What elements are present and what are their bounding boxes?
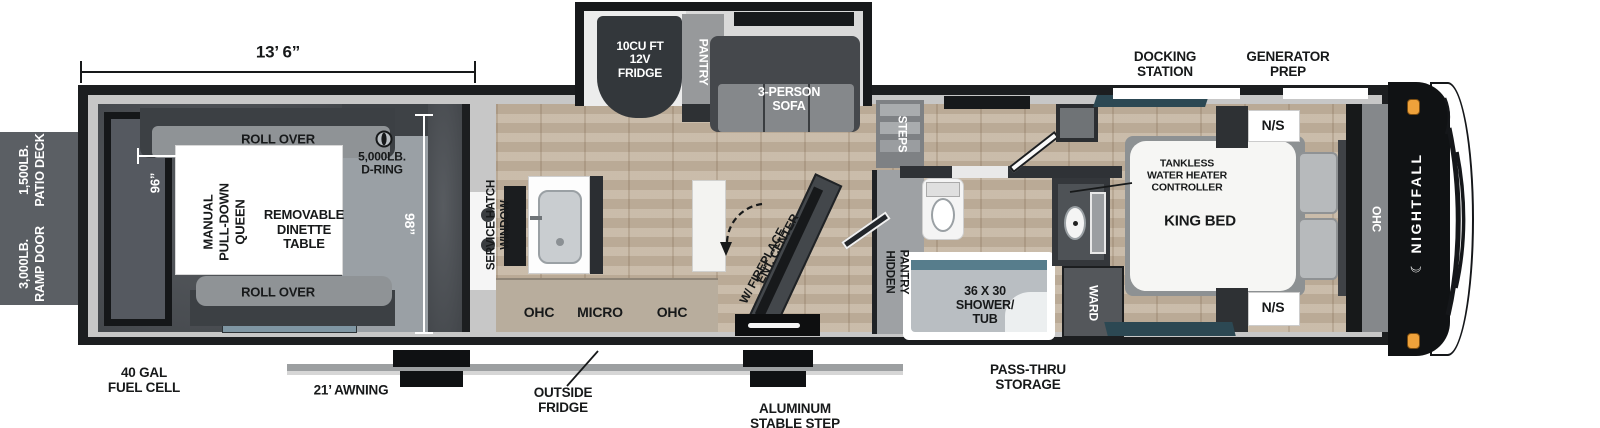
fridge-line: FRIDGE — [616, 67, 663, 80]
queen-bed-label: PULL-DOWN — [218, 183, 233, 261]
sofa-line: SOFA — [758, 99, 820, 113]
slideout-window — [734, 12, 854, 26]
outside-fridge-label: OUTSIDE FRIDGE — [534, 385, 593, 415]
pass-thru-line: PASS-THRU — [990, 362, 1066, 377]
tankless-line: WATER HEATER — [1147, 170, 1227, 182]
hallway-cabinet-mirror — [1060, 108, 1094, 138]
patio-deck-label: PATIO DECK — [33, 133, 47, 206]
hidden-pantry-label: HIDDEN — [883, 251, 896, 294]
king-bed-label: KING BED — [1164, 214, 1236, 231]
generator-line: PREP — [1246, 64, 1329, 79]
hidden-pantry-label: PANTRY — [897, 250, 910, 295]
service-hatch-label: WINDOW — [500, 200, 513, 249]
queen-bed-label: QUEEN — [234, 199, 249, 244]
stable-step-label: ALUMINUM STABLE STEP — [750, 401, 840, 428]
fridge-line: 10CU FT — [616, 40, 663, 53]
generator-prep-label: GENERATOR PREP — [1246, 49, 1329, 79]
nightstand-top-cabinet — [1216, 106, 1248, 148]
queen-width-dimension: 96” — [149, 173, 164, 193]
brand-logo: ☾NIGHTFALL — [1409, 152, 1425, 273]
outside-fridge-line: OUTSIDE — [534, 385, 593, 400]
patio-deck-label: 1,500LB. — [17, 145, 31, 195]
vanity-sink-drain — [1073, 221, 1078, 226]
toilet-tank — [926, 182, 960, 197]
tankless-water-heater-label: TANKLESS WATER HEATER CONTROLLER — [1147, 158, 1227, 193]
docking-station-label: DOCKING STATION — [1134, 49, 1196, 79]
sink-drain — [556, 238, 564, 246]
micro-label: MICRO — [577, 305, 623, 321]
steps-label: STEPS — [895, 116, 908, 153]
roll-over-top-label: ROLL OVER — [241, 133, 315, 148]
hallway-window — [944, 96, 1030, 109]
d-ring-line: D-RING — [358, 164, 406, 177]
toilet-bowl — [931, 198, 955, 232]
pass-thru-storage-label: PASS-THRU STORAGE — [990, 362, 1066, 392]
awning-bar-highlight — [287, 371, 903, 375]
queen-bed-label: MANUAL — [202, 194, 217, 249]
sink-faucet — [530, 216, 542, 220]
headboard — [1338, 140, 1346, 296]
bathroom-door-opening — [952, 166, 1008, 178]
garage-kitchen-wall-line — [462, 104, 470, 332]
fireplace-insert — [748, 323, 800, 328]
shower-line: SHOWER/ — [956, 298, 1014, 312]
dinette-line: REMOVABLE — [264, 208, 344, 223]
outside-fridge-line: FRIDGE — [534, 400, 593, 415]
shower-water-edge — [911, 260, 1047, 270]
fuel-cell-line: 40 GAL — [108, 365, 180, 380]
garage-length-dimension-line — [81, 61, 475, 83]
nightstand-top-label: N/S — [1262, 118, 1285, 134]
ohc-left-label: OHC — [524, 305, 555, 321]
ramp-door-label: 3,000LB. — [17, 239, 31, 289]
brand-name: NIGHTFALL — [1408, 152, 1424, 253]
fuel-cell-line: FUEL CELL — [108, 380, 180, 395]
floorplan-diagram: 13’ 6” 1,500LB. PATIO DECK 3,000LB. RAMP… — [0, 0, 1600, 428]
garage-right-strip — [428, 104, 462, 332]
tankless-line: TANKLESS — [1147, 158, 1227, 170]
crescent-moon-icon: ☾ — [1408, 258, 1424, 273]
sofa-line: 3-PERSON — [758, 85, 820, 99]
bedroom-window-bottom — [1104, 322, 1235, 336]
dinette-table-label: REMOVABLE DINETTE TABLE — [264, 208, 344, 252]
step-tread — [880, 104, 920, 116]
main-entry-step — [743, 350, 813, 367]
shower-tub-label: 36 X 30 SHOWER/ TUB — [956, 284, 1014, 326]
dinette-line: TABLE — [264, 237, 344, 252]
tankless-line: CONTROLLER — [1147, 182, 1227, 194]
kitchen-tall-cabinet — [590, 176, 603, 274]
docking-station-door — [1113, 88, 1240, 99]
shower-line: 36 X 30 — [956, 284, 1014, 298]
garage-entry-step — [393, 350, 470, 367]
fuel-cell-label: 40 GAL FUEL CELL — [108, 365, 180, 395]
marker-light-top — [1407, 99, 1420, 115]
ramp-door-label: RAMP DOOR — [33, 226, 47, 302]
awning-label: 21’ AWNING — [314, 382, 389, 397]
bed-pillow — [1298, 218, 1338, 280]
bedroom-ohc-label: OHC — [1369, 206, 1382, 232]
service-hatch-label: SERVICE HATCH — [486, 180, 499, 270]
ohc-right-label: OHC — [657, 305, 688, 321]
garage-entry-step — [400, 371, 463, 387]
marker-light-bottom — [1407, 333, 1420, 349]
docking-line: STATION — [1134, 64, 1196, 79]
d-ring-line: 5,000LB. — [358, 151, 406, 164]
fridge-label: 10CU FT 12V FRIDGE — [616, 40, 663, 80]
garage-width-dimension: 98” — [401, 213, 417, 235]
kitchen-sink-basin — [538, 190, 582, 264]
sofa-label: 3-PERSON SOFA — [758, 85, 820, 113]
kitchen-island-counter — [692, 180, 726, 272]
main-entry-step — [750, 371, 806, 387]
fridge-line: 12V — [616, 53, 663, 66]
garage-length-dimension: 13’ 6” — [256, 42, 300, 61]
shower-line: TUB — [956, 312, 1014, 326]
bedroom-ohc-dark — [1346, 104, 1362, 332]
stable-step-line: STABLE STEP — [750, 416, 840, 428]
d-ring-label: 5,000LB. D-RING — [358, 151, 406, 178]
docking-line: DOCKING — [1134, 49, 1196, 64]
generator-prep-door — [1283, 88, 1368, 99]
vanity-mirror — [1090, 192, 1106, 254]
dinette-line: DINETTE — [264, 223, 344, 238]
pass-thru-line: STORAGE — [990, 377, 1066, 392]
generator-line: GENERATOR — [1246, 49, 1329, 64]
stable-step-line: ALUMINUM — [750, 401, 840, 416]
nightstand-bottom-label: N/S — [1262, 300, 1285, 316]
roll-over-bottom-label: ROLL OVER — [241, 286, 315, 301]
bed-pillow — [1298, 152, 1338, 214]
wardrobe-label: WARD — [1086, 285, 1099, 321]
pantry-label: PANTRY — [696, 39, 709, 86]
